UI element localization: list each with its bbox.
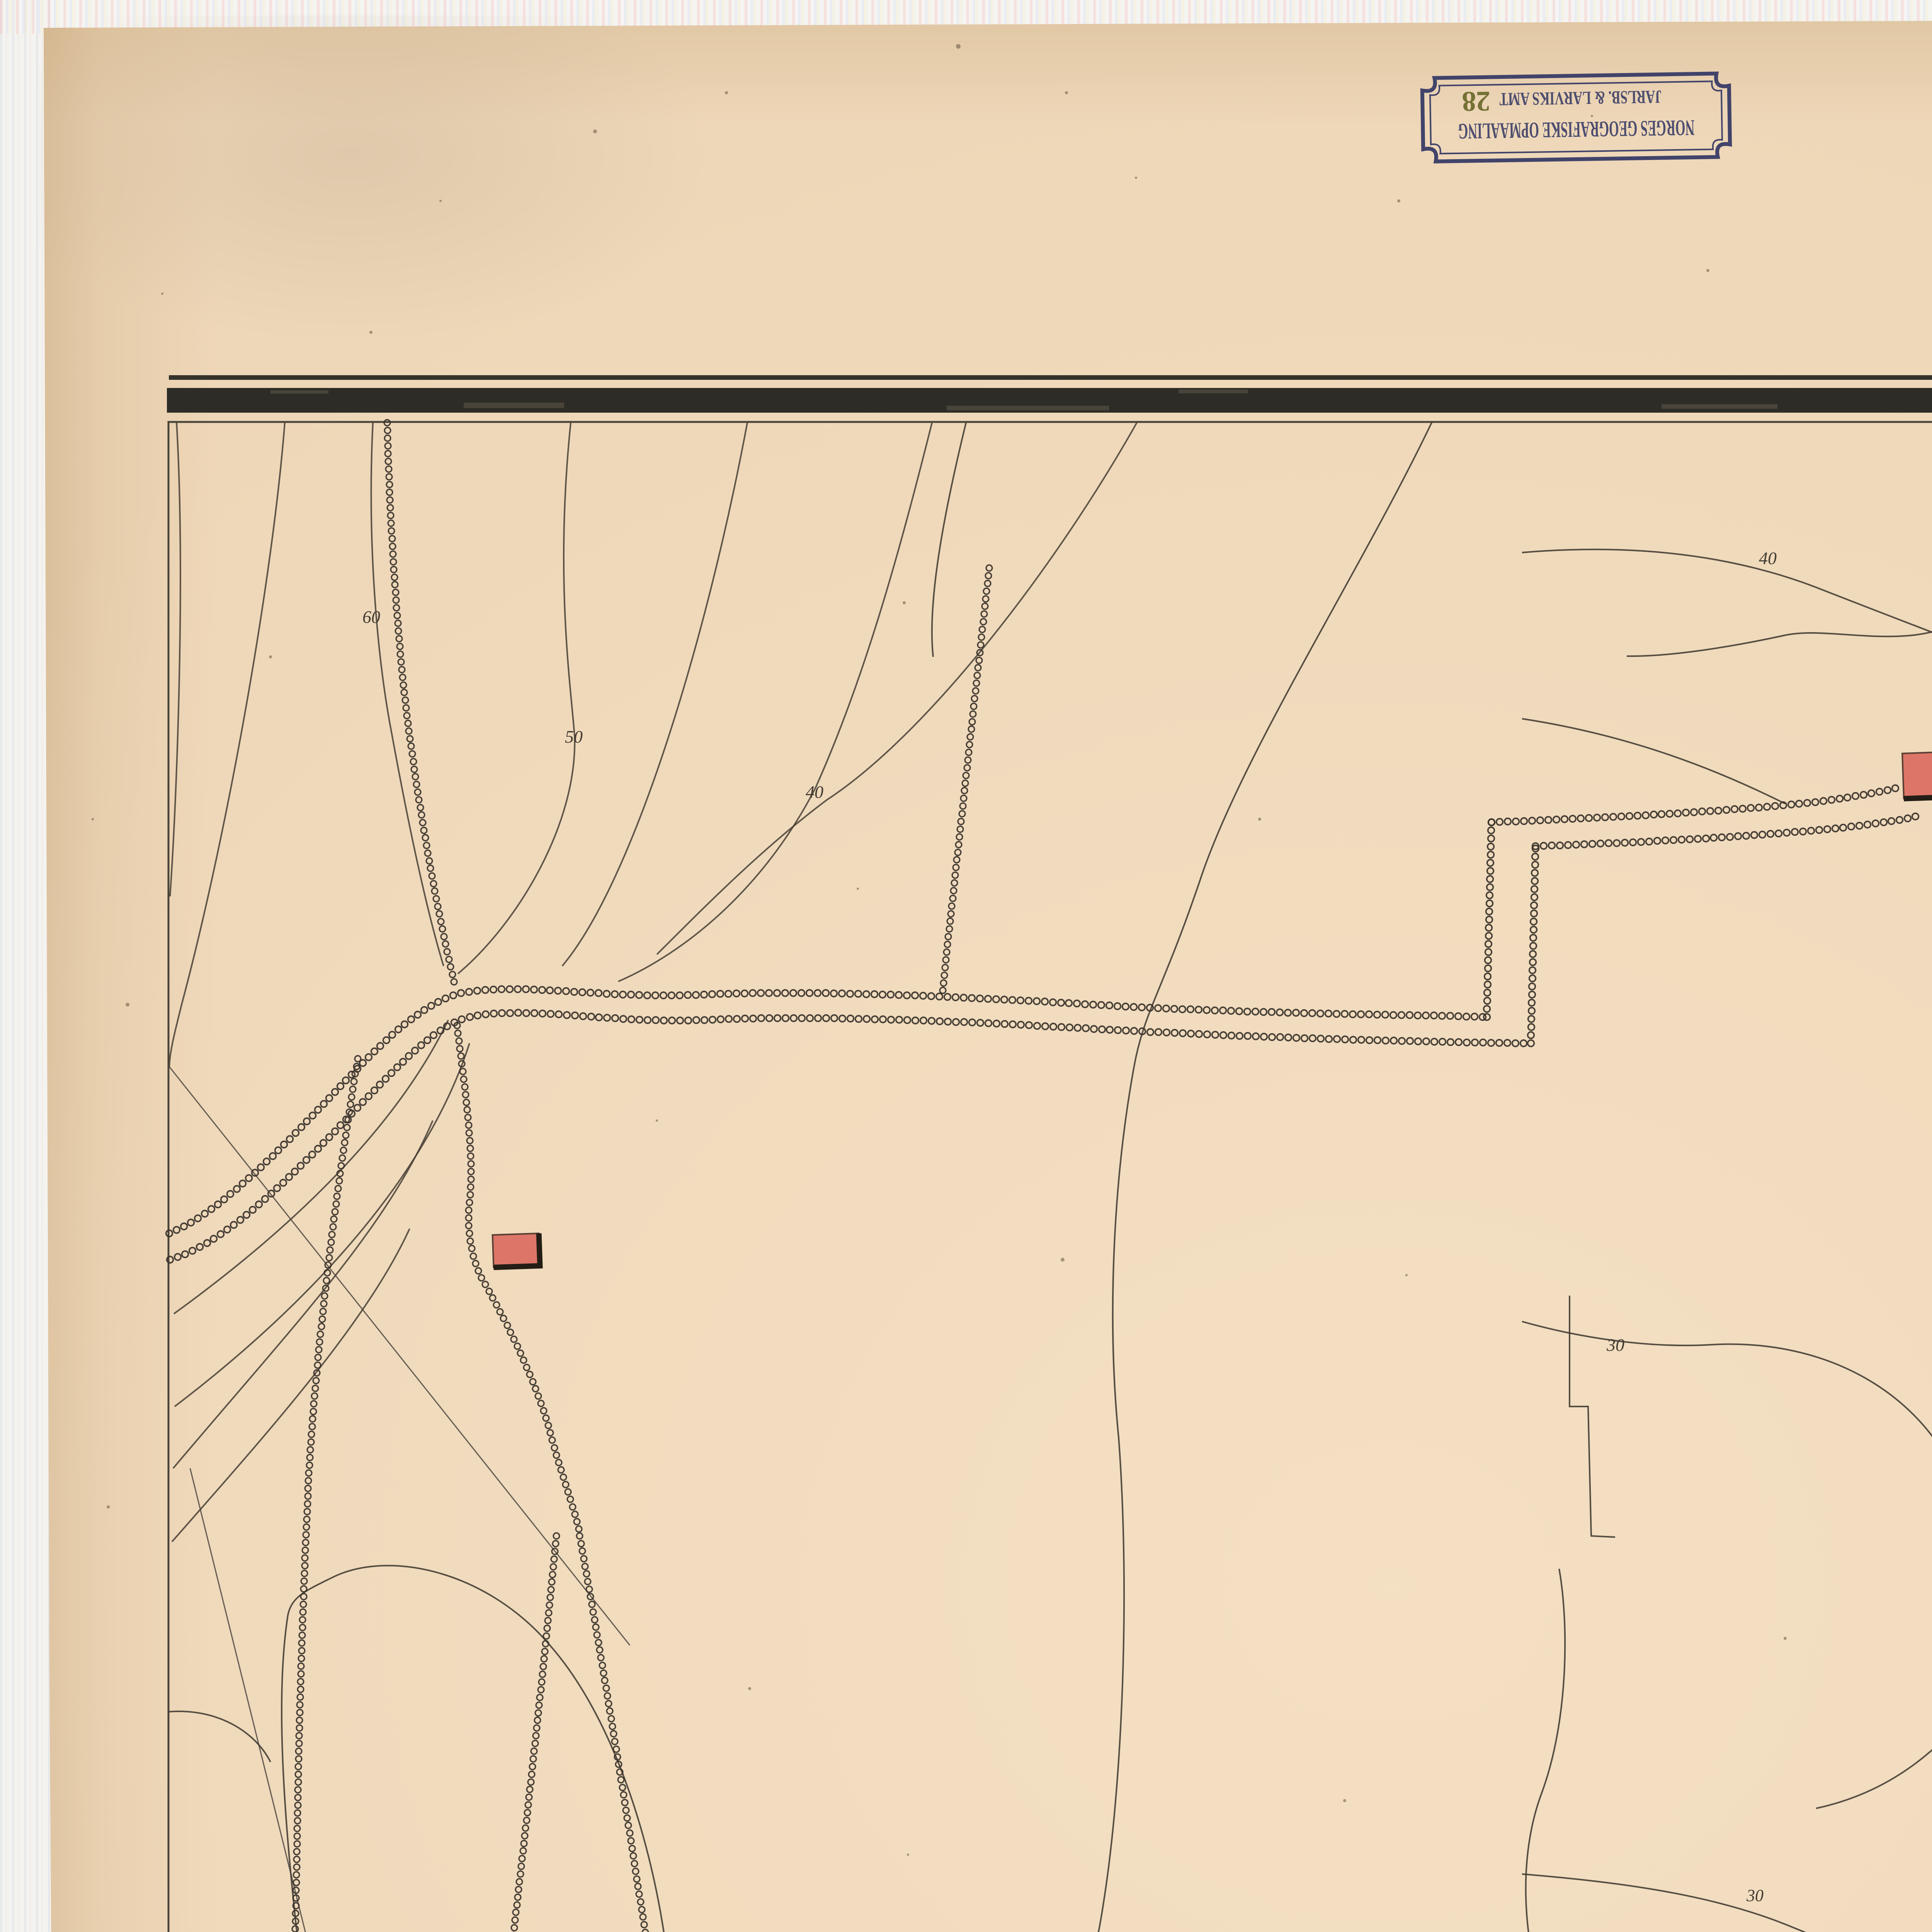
svg-text:50: 50 — [565, 727, 583, 747]
svg-text:40: 40 — [806, 782, 823, 802]
svg-text:NORGES GEOGRAFISKE OPMAALING: NORGES GEOGRAFISKE OPMAALING — [1458, 115, 1695, 144]
svg-text:30: 30 — [1606, 1335, 1624, 1355]
svg-text:28: 28 — [1462, 85, 1491, 117]
svg-text:40: 40 — [1759, 548, 1777, 568]
svg-text:60: 60 — [362, 607, 380, 627]
svg-text:JARLSB. & LARVIKS AMT: JARLSB. & LARVIKS AMT — [1499, 87, 1662, 110]
svg-text:30: 30 — [1746, 1886, 1764, 1905]
